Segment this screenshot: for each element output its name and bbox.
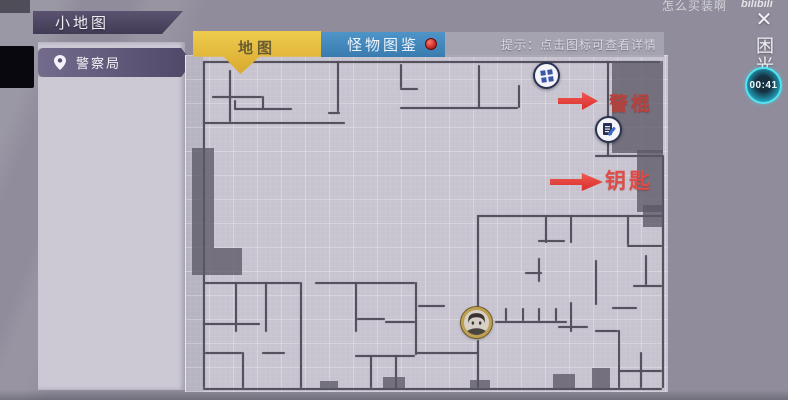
close-icon[interactable]: ✕: [751, 8, 777, 32]
corner-shadow: [0, 0, 30, 13]
watermark-text: 怎么买装啊: [662, 0, 727, 14]
fog-patch: [592, 368, 610, 388]
fog-patch: [320, 381, 338, 389]
hint-bar: 提示：点击图标可查看详情: [445, 32, 664, 57]
annotation-label-baton: 警棍: [609, 89, 653, 116]
banner-streak: [169, 11, 199, 34]
map-fog-layer: [185, 55, 668, 392]
left-dark-patch: [0, 46, 34, 88]
fog-patch: [383, 377, 405, 388]
hint-text: 提示：点击图标可查看详情: [501, 36, 657, 53]
tab-monster-guide-label: 怪物图鉴: [347, 34, 419, 55]
annotation-label-key: 钥匙: [605, 165, 653, 195]
fog-patch: [214, 248, 242, 275]
location-pin-icon: [54, 55, 66, 70]
minimap-title-banner: 小地图: [33, 11, 183, 34]
baton-item-icon[interactable]: [533, 62, 560, 89]
player-avatar: [461, 307, 492, 338]
sidebar-item-police-station[interactable]: 警察局: [38, 48, 192, 77]
document-item-icon[interactable]: [595, 116, 622, 143]
fog-patch: [470, 380, 490, 389]
sidebar-item-label: 警察局: [76, 53, 121, 72]
fog-patch: [553, 374, 575, 388]
page-title: 小地图: [55, 12, 109, 33]
new-content-badge: [425, 38, 437, 50]
countdown-value: 00:41: [749, 80, 777, 91]
fog-patch: [643, 205, 663, 227]
tab-monster-guide[interactable]: 怪物图鉴: [321, 32, 445, 57]
minimap-canvas[interactable]: 警棍 钥匙: [185, 55, 668, 392]
tab-map-label: 地图: [193, 37, 321, 58]
fog-patch: [192, 148, 214, 275]
locations-panel: 警察局: [38, 42, 185, 390]
countdown-timer: 00:41: [745, 67, 782, 104]
game-screen: 小地图 警察局 警棍 钥匙 地图 怪物图鉴: [0, 0, 788, 400]
